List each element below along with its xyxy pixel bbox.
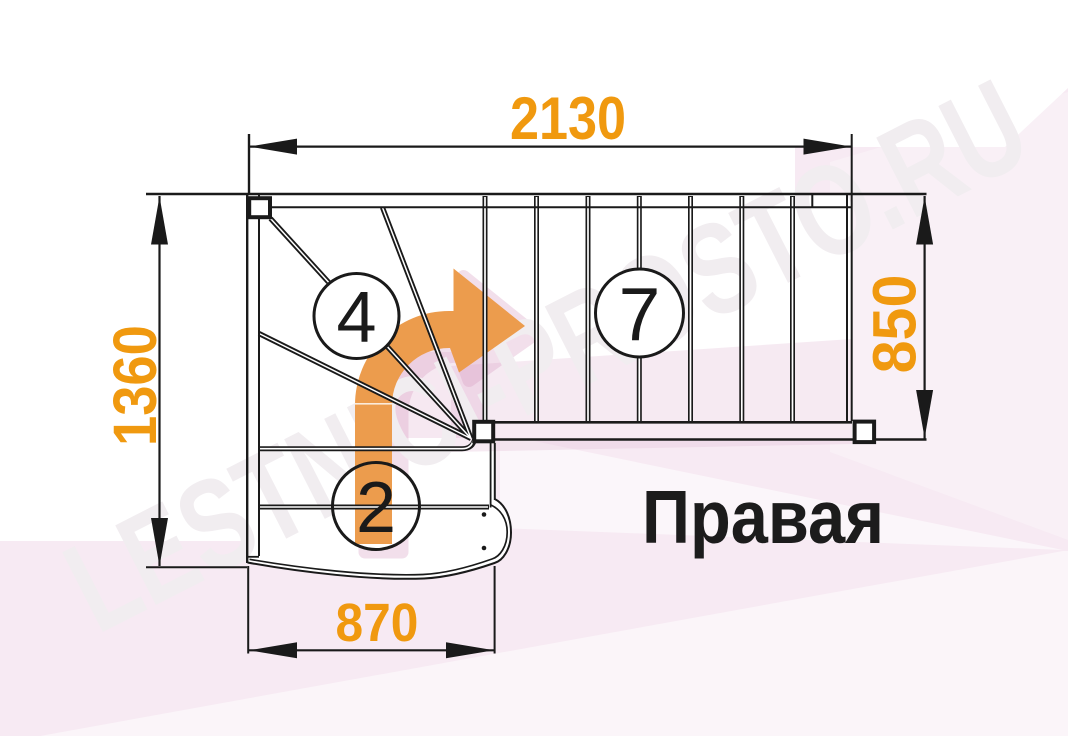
svg-text:850: 850 xyxy=(861,275,929,374)
svg-text:2130: 2130 xyxy=(510,85,626,152)
svg-text:870: 870 xyxy=(336,592,419,652)
svg-text:1360: 1360 xyxy=(102,325,170,446)
svg-text:7: 7 xyxy=(619,272,661,356)
svg-text:2: 2 xyxy=(356,468,396,548)
svg-text:Правая: Правая xyxy=(642,476,884,559)
svg-text:4: 4 xyxy=(336,278,376,358)
